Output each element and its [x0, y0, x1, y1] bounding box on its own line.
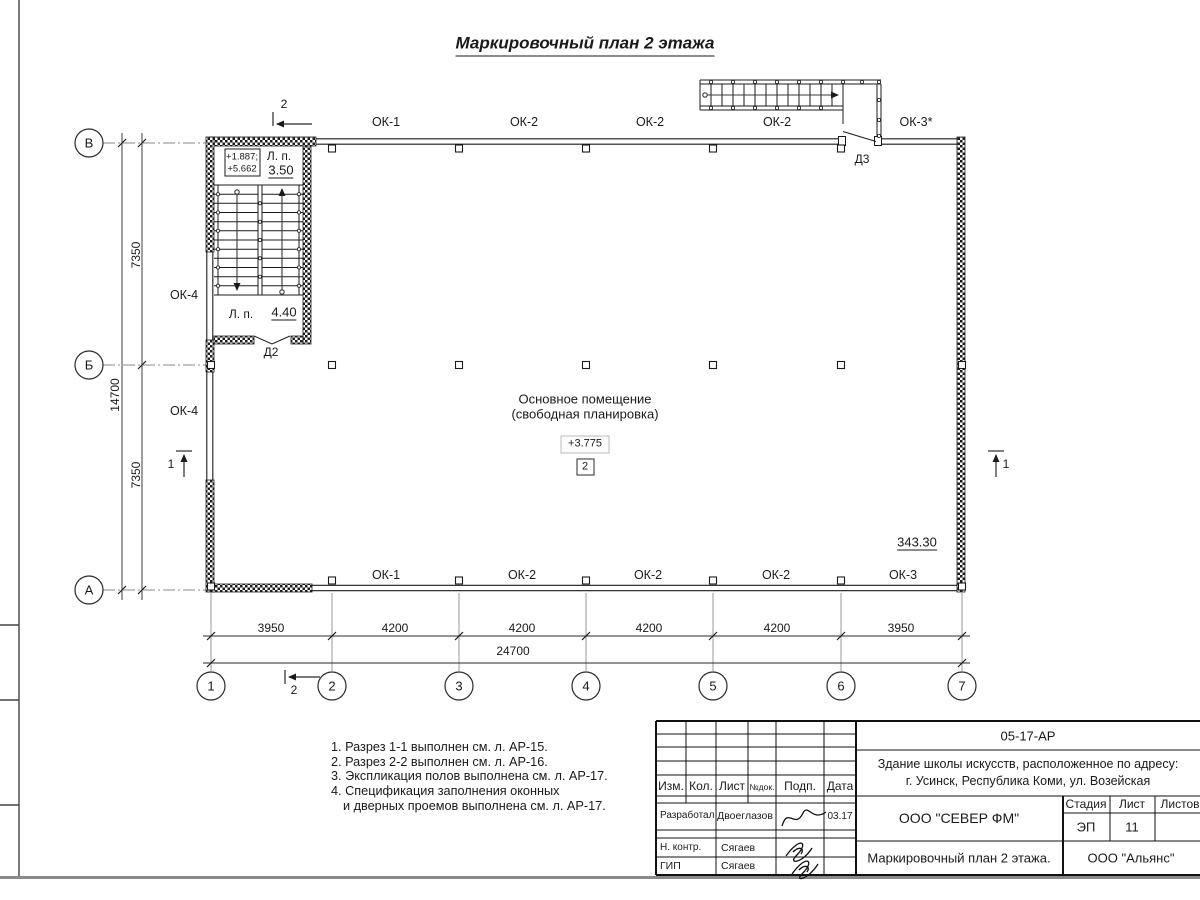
titleblock-role-3: ГИП	[660, 861, 681, 872]
titleblock-col-data: Дата	[827, 780, 854, 792]
titleblock-col-podp: Подп.	[784, 780, 816, 792]
titleblock-date-1: 03.17	[827, 812, 852, 822]
axis-col-1: 1	[207, 680, 214, 693]
landing-value-top: 3.50	[268, 164, 293, 179]
dim-left-2: 7350	[130, 462, 142, 489]
dim-total-bottom: 24700	[496, 645, 529, 657]
axis-row-B: В	[85, 137, 94, 150]
axis-col-3: 3	[455, 680, 462, 693]
section-1-label-right: 1	[1003, 458, 1010, 470]
elevation-343: 343.30	[897, 536, 937, 551]
dim-bay-2: 4200	[382, 622, 409, 634]
window-label-bottom-2: ОК-2	[508, 569, 536, 582]
dim-bay-6: 3950	[888, 622, 915, 634]
window-label-left-1: ОК-4	[170, 289, 198, 302]
titleblock-role-1: Разработал	[660, 811, 714, 821]
window-label-top-4: ОК-2	[763, 116, 791, 129]
section-2-label-bottom: 2	[291, 684, 298, 696]
window-label-bottom-5: ОК-3	[889, 569, 917, 582]
titleblock-col-ndok: №док.	[750, 783, 775, 792]
titleblock-org2: ООО "Альянс"	[1088, 852, 1175, 865]
landing-label-top: Л. п.	[267, 150, 291, 162]
dim-left-1: 7350	[130, 242, 142, 269]
window-label-top-3: ОК-2	[636, 116, 664, 129]
stair-elevation-1: +1.887;	[226, 152, 258, 162]
note-line-5: и дверных проемов выполнена см. л. АР-17…	[331, 799, 608, 814]
room-zone-number: 2	[582, 462, 588, 473]
axis-col-4: 4	[582, 680, 589, 693]
stair-elevation-2: +5.662	[227, 164, 256, 174]
titleblock-sheet-value: 11	[1125, 821, 1139, 834]
axis-row-A: А	[85, 584, 94, 597]
window-label-top-2: ОК-2	[510, 116, 538, 129]
titleblock-drawing-name: Маркировочный план 2 этажа.	[867, 852, 1050, 865]
note-line-1: 1. Разрез 1-1 выполнен см. л. АР-15.	[331, 740, 608, 755]
section-2-label-top: 2	[281, 98, 288, 110]
dim-bay-1: 3950	[258, 622, 285, 634]
drawing-title: Маркировочный план 2 этажа	[456, 34, 715, 57]
section-1-label-left: 1	[168, 458, 175, 470]
window-label-top-5: ОК-3*	[900, 116, 933, 129]
axis-col-5: 5	[709, 680, 716, 693]
titleblock-role-2: Н. контр.	[660, 843, 701, 853]
window-label-left-2: ОК-4	[170, 405, 198, 418]
axis-lines-cols	[211, 593, 962, 671]
exterior-stair-arrow	[703, 93, 838, 97]
titleblock-sheet-label: Лист	[1119, 798, 1145, 810]
landing-value-bottom: 4.40	[271, 306, 296, 321]
note-line-2: 2. Разрез 2-2 выполнен см. л. АР-16.	[331, 755, 608, 770]
door2-label: Д2	[264, 346, 279, 358]
dim-bay-4: 4200	[636, 622, 663, 634]
dim-bay-3: 4200	[509, 622, 536, 634]
landing-label-bottom: Л. п.	[229, 308, 253, 320]
window-label-bottom-4: ОК-2	[762, 569, 790, 582]
room-name-line2: (свободная планировка)	[511, 408, 658, 421]
titleblock-doc-number: 05-17-АР	[1001, 730, 1056, 743]
titleblock-col-izm: Изм.	[658, 780, 684, 792]
notes-block: 1. Разрез 1-1 выполнен см. л. АР-15. 2. …	[331, 740, 608, 813]
window-label-bottom-3: ОК-2	[634, 569, 662, 582]
note-line-4: 4. Спецификация заполнения оконных	[331, 784, 608, 799]
axis-row-Б: Б	[85, 359, 94, 372]
titleblock-project-line1: Здание школы искусств, расположенное по …	[878, 758, 1179, 771]
window-label-bottom-1: ОК-1	[372, 569, 400, 582]
door3-leaf	[843, 132, 876, 142]
titleblock-project-line2: г. Усинск, Республика Коми, ул. Возейска…	[906, 775, 1150, 788]
columns	[208, 145, 966, 590]
titleblock-sheets-label: Листов	[1161, 798, 1200, 810]
exterior-stair-posts	[709, 80, 880, 137]
titleblock-col-kol: Кол.	[689, 780, 713, 792]
titleblock-stage-label: Стадия	[1066, 798, 1107, 810]
drawing-sheet: Маркировочный план 2 этажа ОК-1 ОК-2 ОК-…	[0, 0, 1200, 900]
sheet-frame	[0, 0, 19, 877]
titleblock-name-3: Сягаев	[721, 861, 755, 872]
window-label-top-1: ОК-1	[372, 116, 400, 129]
titleblock-name-1: Двоеглазов	[717, 811, 773, 822]
titleblock-name-2: Сягаев	[721, 843, 755, 854]
axis-col-6: 6	[837, 680, 844, 693]
titleblock-stage-value: ЭП	[1077, 821, 1096, 834]
room-elevation: +3.775	[568, 439, 602, 450]
titleblock-col-list: Лист	[719, 780, 745, 792]
axis-col-2: 2	[328, 680, 335, 693]
dim-total-left: 14700	[109, 378, 121, 411]
door2-opening	[254, 336, 290, 344]
note-line-3: 3. Экспликация полов выполнена см. л. АР…	[331, 769, 608, 784]
titleblock-org1: ООО "СЕВЕР ФМ"	[899, 811, 1019, 825]
dim-bay-5: 4200	[764, 622, 791, 634]
axis-lines-rows	[103, 143, 208, 590]
room-name-line1: Основное помещение	[518, 393, 651, 406]
signature-strokes	[782, 810, 826, 879]
door3-label: Д3	[855, 153, 870, 165]
axis-col-7: 7	[958, 680, 965, 693]
